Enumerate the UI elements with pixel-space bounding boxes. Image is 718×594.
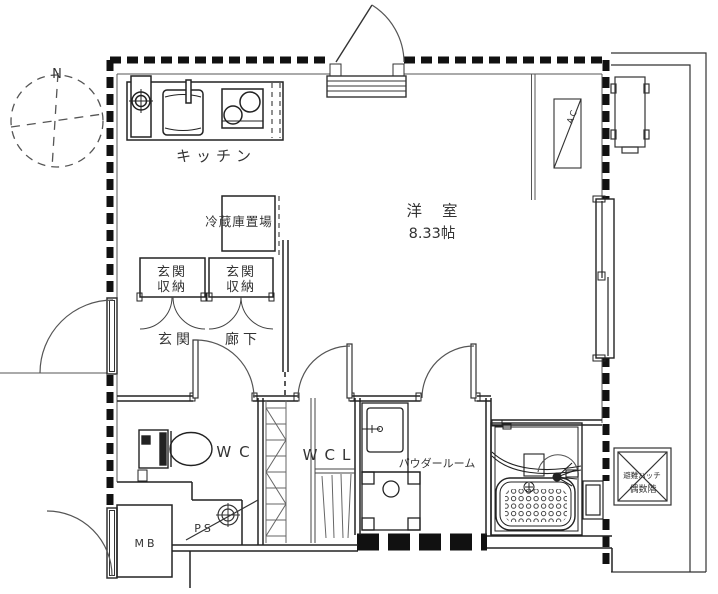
pipe-shaft-label: PS bbox=[194, 522, 214, 535]
compass-rose bbox=[11, 73, 103, 168]
western-room-label: 洋室 bbox=[406, 202, 477, 220]
room-window bbox=[593, 196, 614, 361]
wcl-shelving bbox=[266, 398, 355, 543]
floor-plan: N キッチン 冷蔵庫置場 玄関 収納 玄関 収納 玄関 廊下 洋室 8.33帖 … bbox=[0, 0, 718, 594]
western-room-size: 8.33帖 bbox=[409, 225, 456, 242]
hallway-label: 廊下 bbox=[225, 331, 261, 348]
balcony bbox=[611, 53, 706, 572]
refrigerator-label: 冷蔵庫置場 bbox=[205, 214, 273, 229]
powder-room-door bbox=[422, 344, 476, 398]
north-door bbox=[327, 5, 406, 97]
meter-box-door bbox=[47, 508, 117, 578]
bathroom bbox=[491, 420, 603, 535]
wc-door bbox=[193, 340, 254, 398]
vent-unit bbox=[129, 76, 153, 137]
entrance-door bbox=[40, 298, 117, 374]
entry-step bbox=[327, 76, 406, 97]
bathtub bbox=[496, 478, 575, 530]
storage-right-line2: 収納 bbox=[226, 280, 256, 295]
ac-label: AC bbox=[565, 107, 580, 125]
wcl-label: WCL bbox=[303, 446, 358, 464]
wcl-door bbox=[298, 344, 352, 398]
entrance-label: 玄関 bbox=[158, 331, 194, 348]
wc-label: WC bbox=[216, 443, 257, 461]
storage-right-line1: 玄関 bbox=[226, 265, 256, 280]
stove bbox=[222, 89, 263, 128]
bath-window bbox=[583, 481, 603, 519]
washing-machine-pan bbox=[362, 472, 420, 530]
evacuation-hatch-line1: 避難ハッチ bbox=[623, 470, 661, 480]
kitchen-counter bbox=[127, 76, 283, 140]
kitchen-label: キッチン bbox=[176, 147, 256, 165]
toilet bbox=[138, 430, 212, 481]
storage-left-line2: 収納 bbox=[157, 280, 187, 295]
powder-room-label: パウダールーム bbox=[399, 456, 476, 470]
storage-left-line1: 玄関 bbox=[157, 265, 187, 280]
kitchen-sink bbox=[163, 80, 203, 135]
air-conditioner-mount bbox=[554, 99, 581, 168]
compass-north-label: N bbox=[52, 67, 62, 82]
shower-area bbox=[492, 452, 581, 486]
door-jambs bbox=[190, 393, 480, 401]
meter-box-label: MB bbox=[134, 537, 157, 550]
floor-plan-drawing: N キッチン 冷蔵庫置場 玄関 収納 玄関 収納 玄関 廊下 洋室 8.33帖 … bbox=[0, 0, 718, 594]
evacuation-hatch-line2: 偶数階 bbox=[629, 483, 656, 495]
water-heater bbox=[611, 77, 649, 153]
interior-wall-faces bbox=[0, 74, 602, 482]
faucet bbox=[186, 80, 191, 103]
